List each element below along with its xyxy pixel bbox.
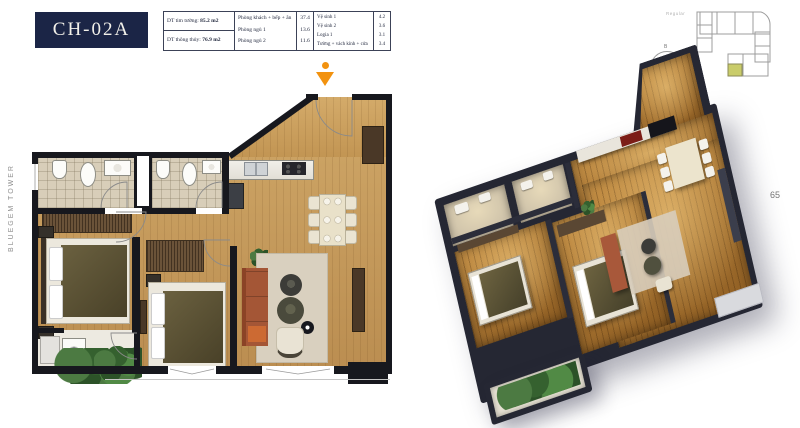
room-label: Vệ sinh 2 (317, 22, 373, 31)
main-rooms-labels: Phòng khách + bếp + ăn Phòng ngủ 1 Phòng… (234, 12, 296, 50)
area-column: DT tim tường: 85.2 m2 DT thông thủy: 76.… (164, 12, 234, 50)
area-label: DT thông thủy: (167, 37, 201, 43)
room-label: Phòng ngủ 1 (238, 25, 296, 37)
info-table: DT tim tường: 85.2 m2 DT thông thủy: 76.… (163, 11, 391, 51)
room-value: 3.1 (374, 31, 390, 40)
room-value: 13.6 (297, 25, 313, 37)
unit-title: CH-02A (53, 19, 130, 41)
room-value: 37.4 (297, 13, 313, 25)
page-number: 65 (770, 190, 780, 200)
door-arc (316, 100, 352, 136)
floor-plan-2d (30, 60, 392, 390)
entrance-marker-icon (316, 72, 334, 86)
door-arc (196, 182, 222, 208)
door-arc (101, 182, 127, 208)
area-value: 85.2 m2 (200, 18, 218, 24)
floor-plan-3d (420, 37, 785, 428)
door-arc (116, 212, 146, 242)
door-arc (204, 240, 230, 266)
north-label: B (664, 44, 667, 50)
area-label: DT tim tường: (167, 18, 199, 24)
room-label: Tường + vách kính + cửa (317, 40, 373, 49)
window-glyph (170, 369, 214, 374)
entrance-marker-icon (322, 62, 329, 69)
window-glyph (266, 369, 330, 374)
tower-label: BLUEGEM TOWER (8, 164, 15, 252)
aux-rooms-values: 4.2 3.6 3.1 3.4 (373, 12, 390, 50)
room-value: 3.6 (374, 22, 390, 31)
keyplan-caption: Regular (666, 11, 685, 16)
room-value: 3.4 (374, 40, 390, 49)
room-label: Vệ sinh 1 (317, 13, 373, 22)
room-label: Phòng ngủ 2 (238, 36, 296, 48)
area-value: 76.9 m2 (202, 37, 220, 43)
room-value: 4.2 (374, 13, 390, 22)
area-row: DT tim tường: 85.2 m2 (164, 12, 234, 31)
unit-title-box: CH-02A (35, 12, 148, 48)
door-swings (30, 60, 392, 390)
door-arc (111, 333, 137, 359)
area-row: DT thông thủy: 76.9 m2 (164, 31, 234, 49)
iso-blanket (479, 261, 528, 317)
main-rooms-values: 37.4 13.6 11.6 (296, 12, 313, 50)
room-label: Logia 1 (317, 31, 373, 40)
room-label: Phòng khách + bếp + ăn (238, 13, 296, 25)
room-value: 11.6 (297, 36, 313, 48)
aux-rooms-labels: Vệ sinh 1 Vệ sinh 2 Logia 1 Tường + vách… (313, 12, 373, 50)
